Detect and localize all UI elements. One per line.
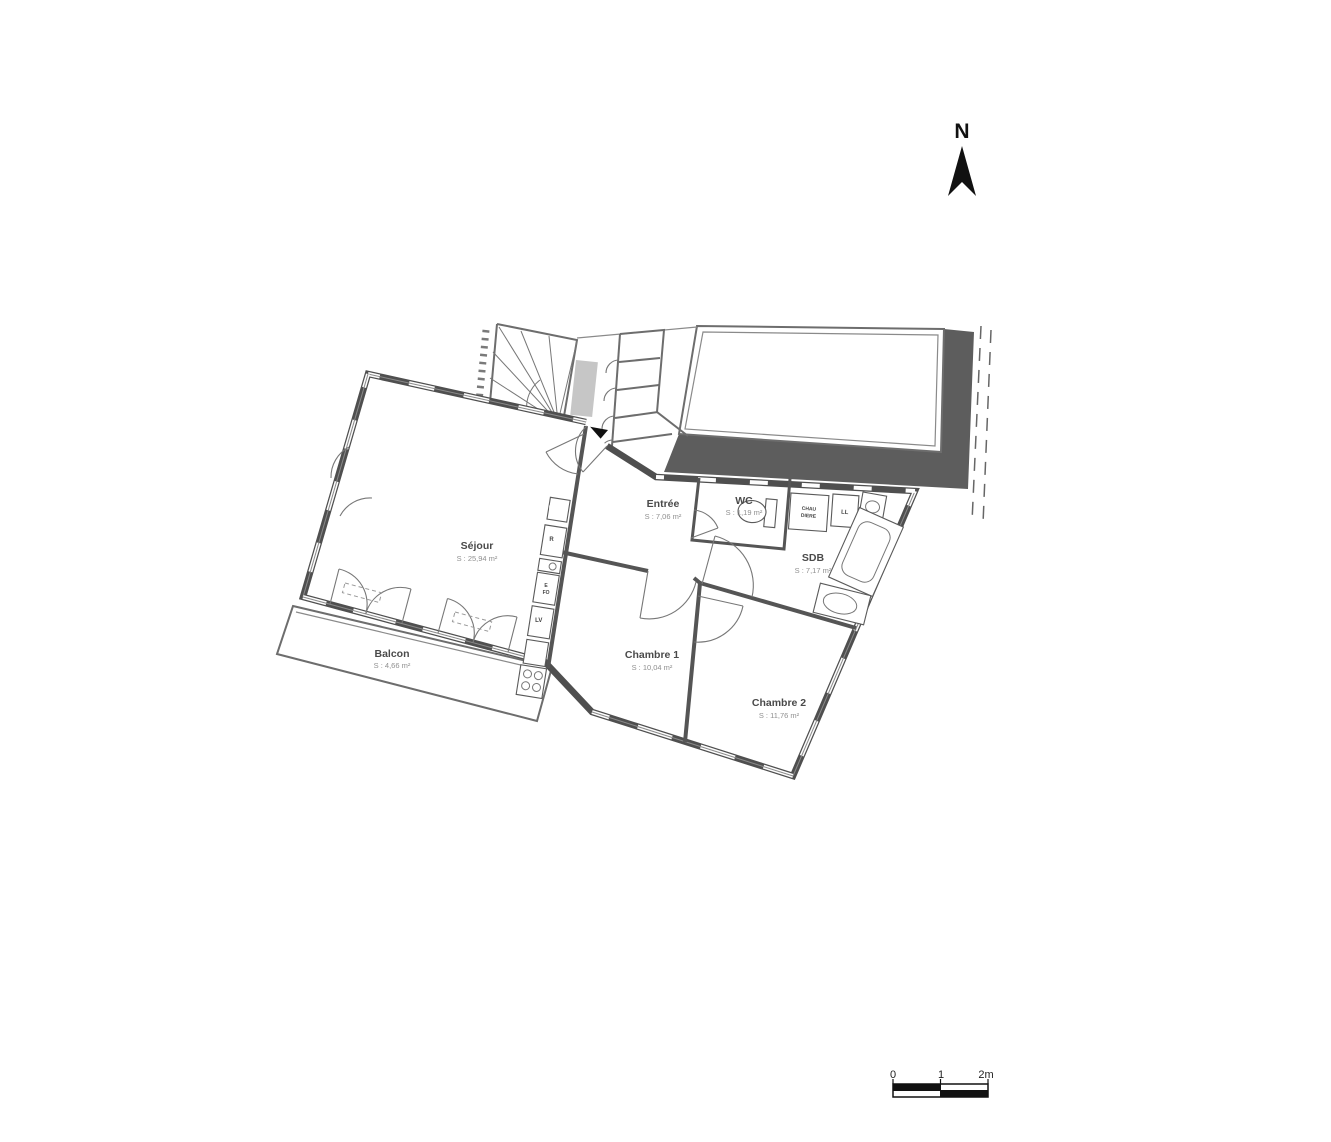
north-label: N <box>954 120 969 143</box>
svg-text:S : 4,66 m²: S : 4,66 m² <box>374 661 411 670</box>
floor-plan-drawing: ELEC R E FO LV CHAU DIERE LL <box>0 0 1331 1142</box>
apartment-shell <box>303 374 915 776</box>
boiler-label-1: CHAU <box>801 506 816 513</box>
room-label-chambre2: Chambre 2 S : 11,76 m² <box>752 697 806 720</box>
floor-plan-canvas: ELEC R E FO LV CHAU DIERE LL <box>0 0 1331 1142</box>
svg-text:S : 25,94 m²: S : 25,94 m² <box>457 554 498 563</box>
washing-machine-label: LL <box>841 510 849 517</box>
scale-cell-top-black <box>893 1084 941 1091</box>
room-label-sejour: Séjour S : 25,94 m² <box>457 540 498 563</box>
room-label-balcon: Balcon S : 4,66 m² <box>374 648 411 670</box>
svg-text:S : 7,17 m²: S : 7,17 m² <box>795 566 832 575</box>
terrace-band <box>664 329 974 489</box>
stove <box>516 665 546 699</box>
boundary-dashed-2 <box>983 330 991 524</box>
counter-box <box>523 639 548 666</box>
svg-text:Chambre 1: Chambre 1 <box>625 649 679 661</box>
oven-box <box>533 572 559 605</box>
boiler-box: CHAU DIERE <box>788 493 828 532</box>
elevator-duct <box>570 360 598 417</box>
north-arrow-icon <box>948 146 976 196</box>
oven-label-2: FO <box>543 590 550 596</box>
scale-tick-2m: 2m <box>978 1069 993 1081</box>
north-arrow: N <box>948 120 976 196</box>
elec-panel-label: ELEC <box>549 505 563 511</box>
svg-text:S : 10,04 m²: S : 10,04 m² <box>632 663 673 672</box>
svg-text:S : 11,76 m²: S : 11,76 m² <box>759 711 800 720</box>
svg-text:S : 1,19 m²: S : 1,19 m² <box>726 508 763 517</box>
storage-cells <box>600 330 688 453</box>
dishwasher-label: LV <box>535 618 542 624</box>
scale-cell-bottom-black <box>941 1091 989 1098</box>
room-label-chambre1: Chambre 1 S : 10,04 m² <box>625 649 679 672</box>
boundary-dashed-1 <box>972 326 981 522</box>
fridge-label: R <box>549 537 554 543</box>
scale-bar: 0 1 2m <box>890 1069 994 1097</box>
courtyard-outline <box>679 326 944 452</box>
courtyard-inner-line <box>685 332 938 446</box>
svg-text:S : 7,06 m²: S : 7,06 m² <box>645 512 682 521</box>
svg-text:Balcon: Balcon <box>374 648 409 660</box>
svg-text:WC: WC <box>735 495 753 507</box>
svg-text:SDB: SDB <box>802 552 825 564</box>
boiler-label-2: DIERE <box>801 513 817 520</box>
svg-text:Chambre 2: Chambre 2 <box>752 697 806 709</box>
svg-text:Entrée: Entrée <box>647 498 680 510</box>
svg-text:Séjour: Séjour <box>461 540 494 552</box>
room-label-entree: Entrée S : 7,06 m² <box>645 498 682 521</box>
